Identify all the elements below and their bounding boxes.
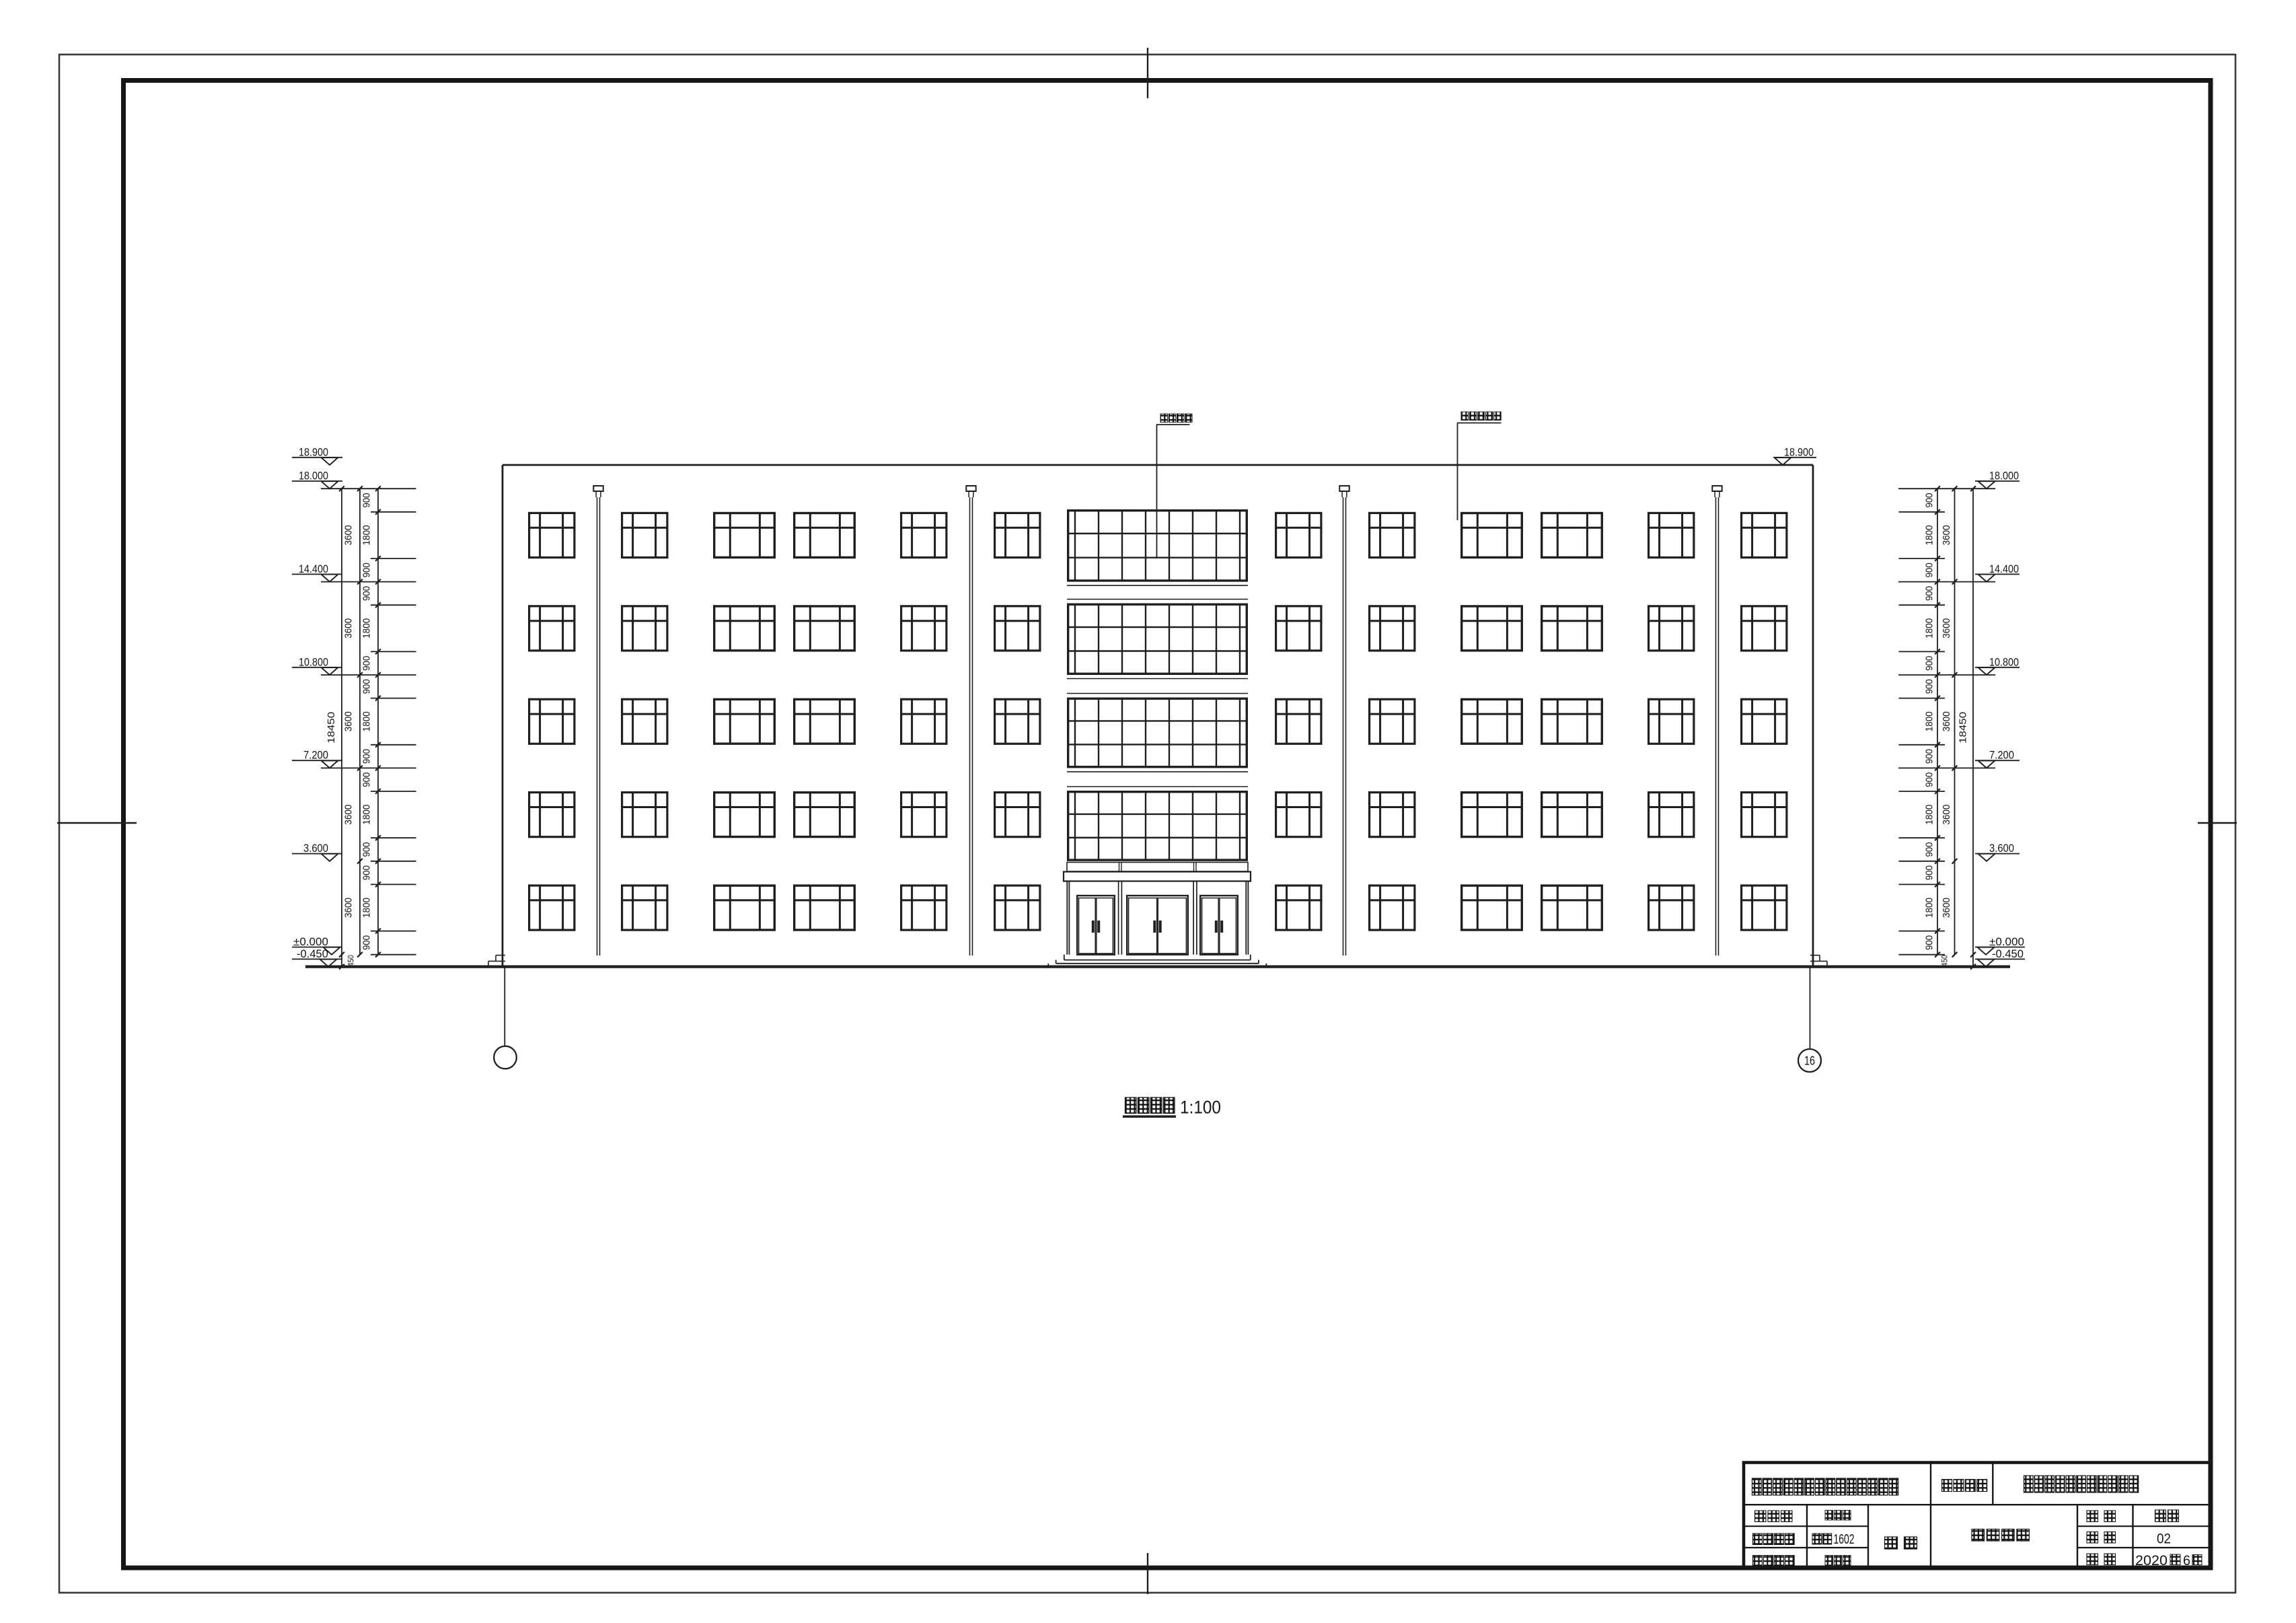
- svg-text:3.600: 3.600: [303, 842, 328, 855]
- svg-text:3600: 3600: [343, 618, 355, 639]
- svg-text:900: 900: [361, 563, 373, 577]
- svg-text:3600: 3600: [343, 898, 355, 918]
- svg-text:-0.450: -0.450: [1992, 948, 2024, 960]
- svg-text:1:100: 1:100: [1180, 1097, 1221, 1118]
- svg-text:1800: 1800: [361, 525, 373, 545]
- svg-text:18450: 18450: [1958, 712, 1969, 744]
- svg-text:1800: 1800: [361, 805, 373, 825]
- svg-text:18.900: 18.900: [1784, 446, 1814, 458]
- svg-text:450: 450: [1940, 955, 1950, 966]
- svg-text:18450: 18450: [326, 712, 337, 744]
- svg-text:3600: 3600: [1941, 898, 1952, 918]
- svg-text:14.400: 14.400: [299, 563, 328, 575]
- svg-text:1800: 1800: [1924, 618, 1935, 639]
- svg-text:900: 900: [1924, 865, 1935, 880]
- svg-text:900: 900: [1924, 842, 1935, 857]
- svg-text:1800: 1800: [1924, 711, 1935, 731]
- svg-text:16: 16: [1804, 1054, 1815, 1068]
- svg-text:-0.450: -0.450: [297, 948, 328, 960]
- svg-text:3600: 3600: [1941, 805, 1952, 825]
- svg-text:900: 900: [1924, 586, 1935, 601]
- svg-text:900: 900: [1924, 679, 1935, 694]
- svg-text:2020: 2020: [2135, 1553, 2168, 1568]
- svg-text:1800: 1800: [361, 618, 373, 639]
- svg-text:18.900: 18.900: [299, 446, 328, 458]
- svg-text:18.000: 18.000: [299, 470, 328, 482]
- svg-text:±0.000: ±0.000: [293, 936, 328, 948]
- svg-text:1800: 1800: [1924, 898, 1935, 918]
- svg-text:14.400: 14.400: [1989, 563, 2019, 575]
- svg-text:900: 900: [1924, 656, 1935, 671]
- svg-text:900: 900: [1924, 493, 1935, 508]
- svg-text:10.800: 10.800: [1989, 656, 2019, 668]
- svg-text:3600: 3600: [1941, 618, 1952, 639]
- svg-text:900: 900: [1924, 749, 1935, 764]
- svg-text:450: 450: [346, 955, 356, 966]
- svg-text:900: 900: [361, 935, 373, 950]
- svg-text:1800: 1800: [1924, 525, 1935, 545]
- svg-text:900: 900: [361, 656, 373, 671]
- svg-text:10.800: 10.800: [299, 656, 328, 668]
- svg-text:1800: 1800: [1924, 805, 1935, 825]
- svg-text:900: 900: [361, 679, 373, 694]
- svg-text:900: 900: [1924, 563, 1935, 577]
- svg-text:1602: 1602: [1834, 1532, 1855, 1547]
- svg-text:6: 6: [2183, 1553, 2190, 1568]
- svg-text:3.600: 3.600: [1989, 842, 2014, 855]
- svg-text:1800: 1800: [361, 898, 373, 918]
- svg-text:3600: 3600: [1941, 525, 1952, 545]
- svg-text:3600: 3600: [343, 525, 355, 545]
- svg-text:1800: 1800: [361, 711, 373, 731]
- svg-text:3600: 3600: [343, 711, 355, 731]
- svg-text:3600: 3600: [343, 805, 355, 825]
- svg-text:900: 900: [361, 493, 373, 508]
- svg-text:7.200: 7.200: [303, 750, 328, 762]
- svg-text:900: 900: [361, 586, 373, 601]
- svg-text:±0.000: ±0.000: [1989, 936, 2024, 948]
- svg-text:3600: 3600: [1941, 711, 1952, 731]
- svg-text:02: 02: [2157, 1531, 2171, 1547]
- svg-text:900: 900: [361, 772, 373, 787]
- svg-text:7.200: 7.200: [1989, 750, 2014, 762]
- svg-text:900: 900: [1924, 935, 1935, 950]
- svg-text:900: 900: [361, 749, 373, 764]
- svg-text:900: 900: [361, 865, 373, 880]
- svg-text:900: 900: [361, 842, 373, 857]
- svg-text:900: 900: [1924, 772, 1935, 787]
- svg-text:18.000: 18.000: [1989, 470, 2019, 482]
